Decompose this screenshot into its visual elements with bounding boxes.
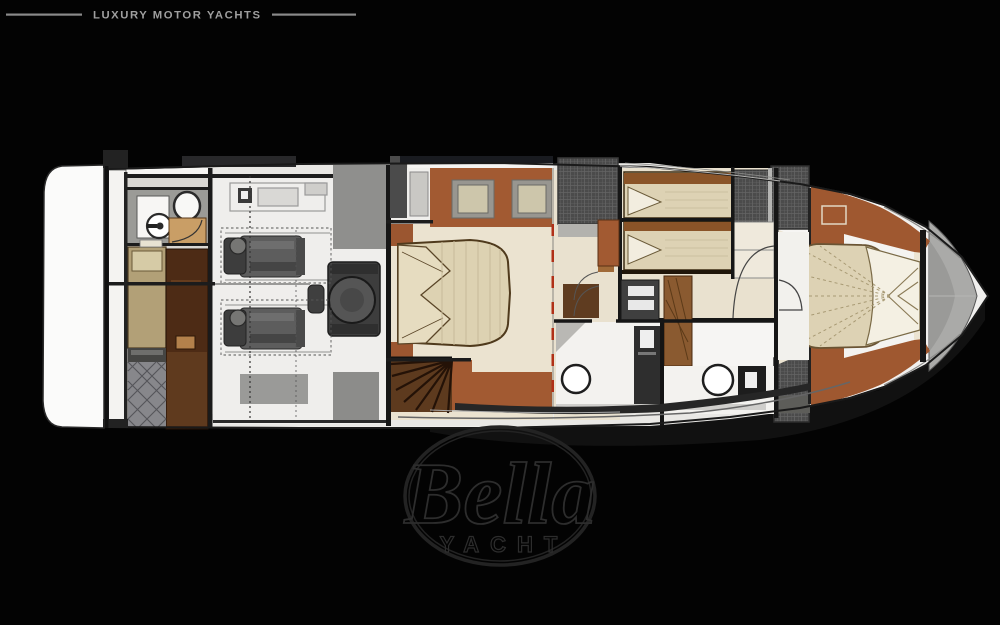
svg-text:YACHT: YACHT (440, 532, 569, 557)
svg-text:Bella: Bella (404, 446, 596, 543)
svg-text:LUXURY MOTOR YACHTS: LUXURY MOTOR YACHTS (93, 10, 262, 22)
